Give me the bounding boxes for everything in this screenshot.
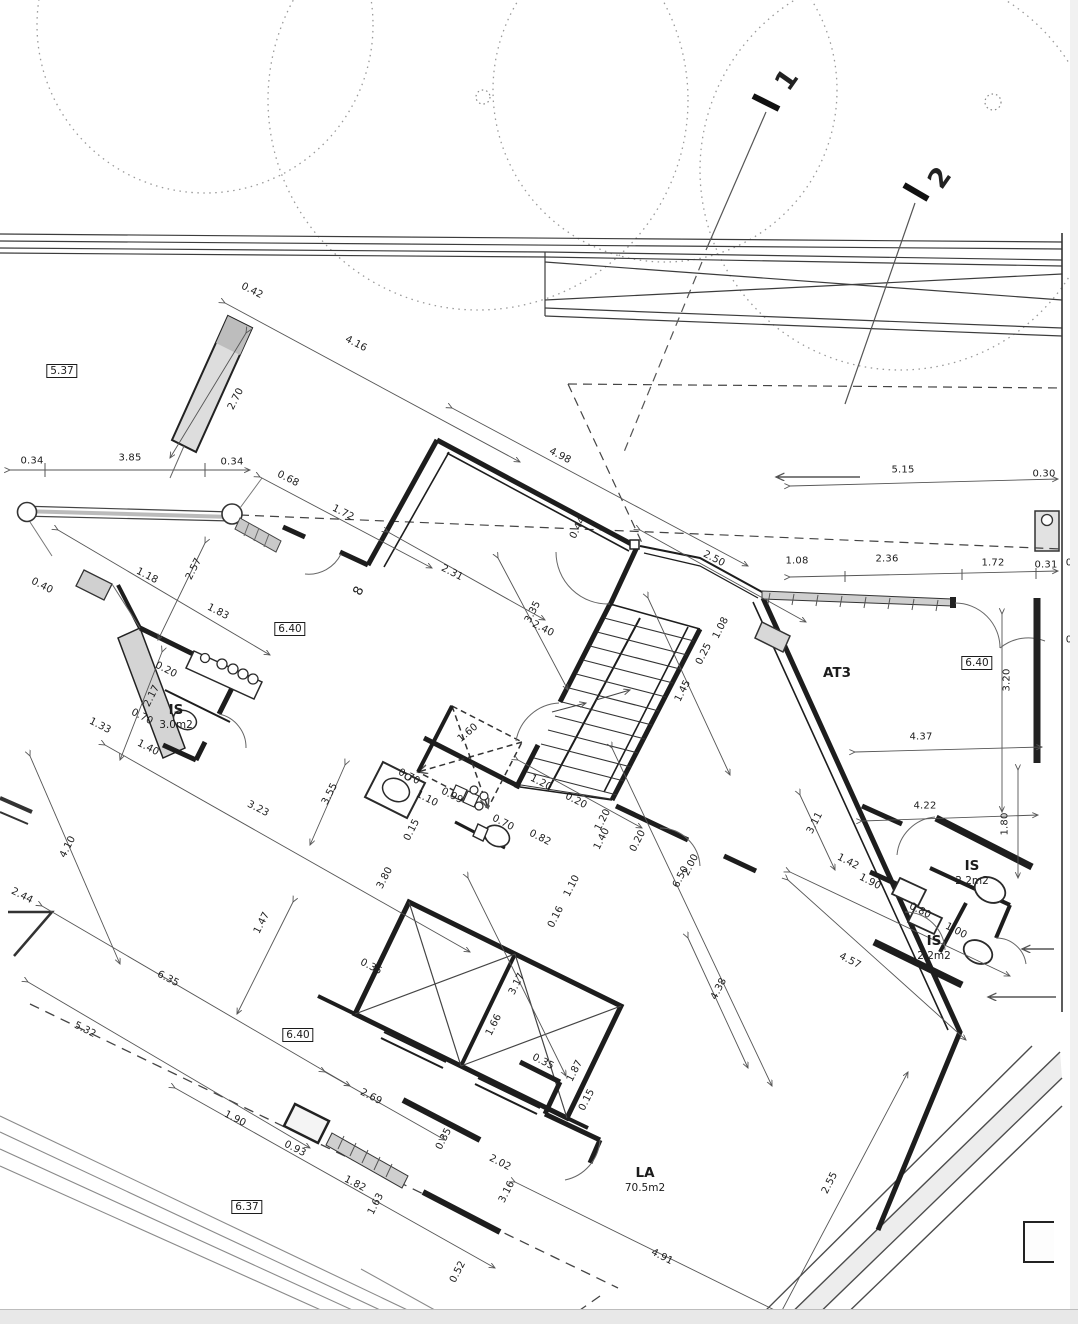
- scan-edge-bottom: [0, 1309, 1078, 1324]
- dimension-label: 0.20: [563, 791, 589, 811]
- dimension-label: 1.63: [366, 1191, 386, 1217]
- dimension-label: 1.42: [835, 852, 861, 872]
- dimension-label: 3.23: [245, 799, 271, 819]
- room-label: IS2.2m2: [955, 859, 989, 887]
- room-label: IS3.0m2: [159, 703, 193, 731]
- dimension-label: 0.31: [1034, 560, 1057, 571]
- dimension-label: 1.08: [785, 556, 808, 567]
- dimension-label: 0.68: [275, 469, 301, 489]
- dimension-label: 2.57: [184, 556, 204, 582]
- dimension-label: 3.80: [375, 865, 395, 891]
- dimension-label: 1.10: [414, 789, 440, 809]
- room-name: LA: [625, 1166, 665, 1182]
- dimension-label: 0.70: [490, 813, 516, 833]
- dimension-label: 0.20: [628, 828, 648, 854]
- dimension-label: 4.38: [709, 976, 729, 1002]
- dimension-label: 3.20: [1002, 668, 1013, 691]
- dimension-label: 2.55: [820, 1170, 840, 1196]
- dimension-label: 1.72: [330, 503, 356, 523]
- room-area: 70.5m2: [625, 1182, 665, 1194]
- dimension-label: 1.45: [673, 678, 693, 704]
- dimension-label: 3.16: [497, 1179, 517, 1205]
- dimension-label: 0.70: [129, 707, 155, 727]
- dimension-label: 1.20: [528, 773, 554, 793]
- dimension-label: 2.40: [530, 619, 556, 639]
- dimension-label: 2.31: [439, 563, 465, 583]
- dimension-label: 0.80: [907, 901, 933, 921]
- dimension-label: 2.50: [701, 549, 727, 569]
- room-name: AT3: [823, 666, 851, 682]
- dimension-label: 0.35: [358, 957, 384, 977]
- room-area: 2.2m2: [917, 950, 951, 962]
- level-marker: 6.40: [282, 1028, 313, 1042]
- dimension-label: 1.82: [342, 1174, 368, 1194]
- dimension-label: 1.18: [134, 566, 160, 586]
- dimension-label: 0.34: [220, 457, 243, 468]
- dimension-label: 4.16: [343, 334, 369, 354]
- dimension-label: 4.98: [547, 446, 573, 466]
- dimension-label: 4.57: [837, 951, 863, 971]
- dimension-label: 5.15: [891, 465, 914, 476]
- dimension-label: 2.69: [358, 1087, 384, 1107]
- label-layer: 0.343.850.340.424.162.700.681.725.150.30…: [0, 0, 1078, 1324]
- dimension-label: 0.35: [434, 1126, 454, 1152]
- section-marker-label: 2: [922, 161, 958, 194]
- dimension-label: 1.10: [562, 873, 582, 899]
- dimension-label: 2.44: [9, 886, 35, 906]
- dimension-label: 0.40: [29, 576, 55, 596]
- dimension-label: 1.90: [857, 872, 883, 892]
- dimension-label: 2.00: [681, 852, 701, 878]
- dimension-label: 3.55: [320, 781, 340, 807]
- dimension-label: 3.17: [507, 971, 527, 997]
- dimension-label: 0.16: [546, 904, 566, 930]
- level-marker: 5.37: [46, 364, 77, 378]
- wall-tag: 8: [350, 584, 367, 598]
- dimension-label: 0.30: [1032, 469, 1055, 480]
- room-area: 3.0m2: [159, 719, 193, 731]
- level-marker: 6.40: [961, 656, 992, 670]
- scan-edge-right: [1070, 0, 1078, 1324]
- dimension-label: 0.44: [568, 515, 588, 541]
- dimension-label: 2.70: [226, 386, 246, 412]
- dimension-label: 0.20: [153, 660, 179, 680]
- room-label: LA70.5m2: [625, 1166, 665, 1194]
- dimension-label: 1.80: [1000, 812, 1011, 835]
- dimension-label: 3.85: [118, 453, 141, 464]
- dimension-label: 0.52: [448, 1259, 468, 1285]
- dimension-label: 0.82: [527, 828, 553, 848]
- dimension-label: 2.02: [487, 1153, 513, 1173]
- dimension-label: 0.93: [282, 1139, 308, 1159]
- dimension-label: 1.60: [456, 721, 481, 744]
- dimension-label: 0.25: [694, 641, 714, 667]
- dimension-label: 0.34: [20, 456, 43, 467]
- dimension-label: 1.83: [205, 602, 231, 622]
- dimension-label: 1.87: [565, 1058, 585, 1084]
- dimension-label: 1.90: [222, 1109, 248, 1129]
- dimension-label: 3.11: [805, 810, 825, 836]
- dimension-label: 6.35: [155, 969, 181, 989]
- dimension-label: 1.40: [592, 826, 612, 852]
- room-area: 2.2m2: [955, 875, 989, 887]
- floorplan-sheet: 0.343.850.340.424.162.700.681.725.150.30…: [0, 0, 1078, 1324]
- dimension-label: 4.91: [649, 1247, 675, 1267]
- dimension-label: 0.99: [439, 786, 465, 806]
- dimension-label: 0.15: [402, 817, 422, 843]
- dimension-label: 1.08: [711, 615, 731, 641]
- dimension-label: 4.37: [909, 732, 932, 743]
- dimension-label: 4.22: [913, 801, 936, 812]
- dimension-label: 5.32: [72, 1020, 98, 1040]
- level-marker: 6.40: [274, 622, 305, 636]
- dimension-label: 1.72: [981, 558, 1004, 569]
- dimension-label: 1.47: [252, 910, 272, 936]
- room-label: AT3: [823, 666, 851, 682]
- dimension-label: 0.15: [577, 1087, 597, 1113]
- dimension-label: 1.40: [135, 738, 161, 758]
- room-name: IS: [955, 859, 989, 875]
- room-name: IS: [159, 703, 193, 719]
- dimension-label: 0.42: [239, 281, 265, 301]
- level-marker: 6.37: [231, 1200, 262, 1214]
- section-marker-label: 1: [769, 63, 805, 96]
- dimension-label: 1.66: [484, 1012, 504, 1038]
- room-name: IS: [917, 934, 951, 950]
- dimension-label: 0.35: [530, 1052, 556, 1072]
- dimension-label: 4.10: [58, 834, 78, 860]
- dimension-label: 0.70: [396, 767, 422, 787]
- room-label: IS2.2m2: [917, 934, 951, 962]
- dimension-label: 2.36: [875, 554, 898, 565]
- dimension-label: 1.33: [87, 716, 113, 736]
